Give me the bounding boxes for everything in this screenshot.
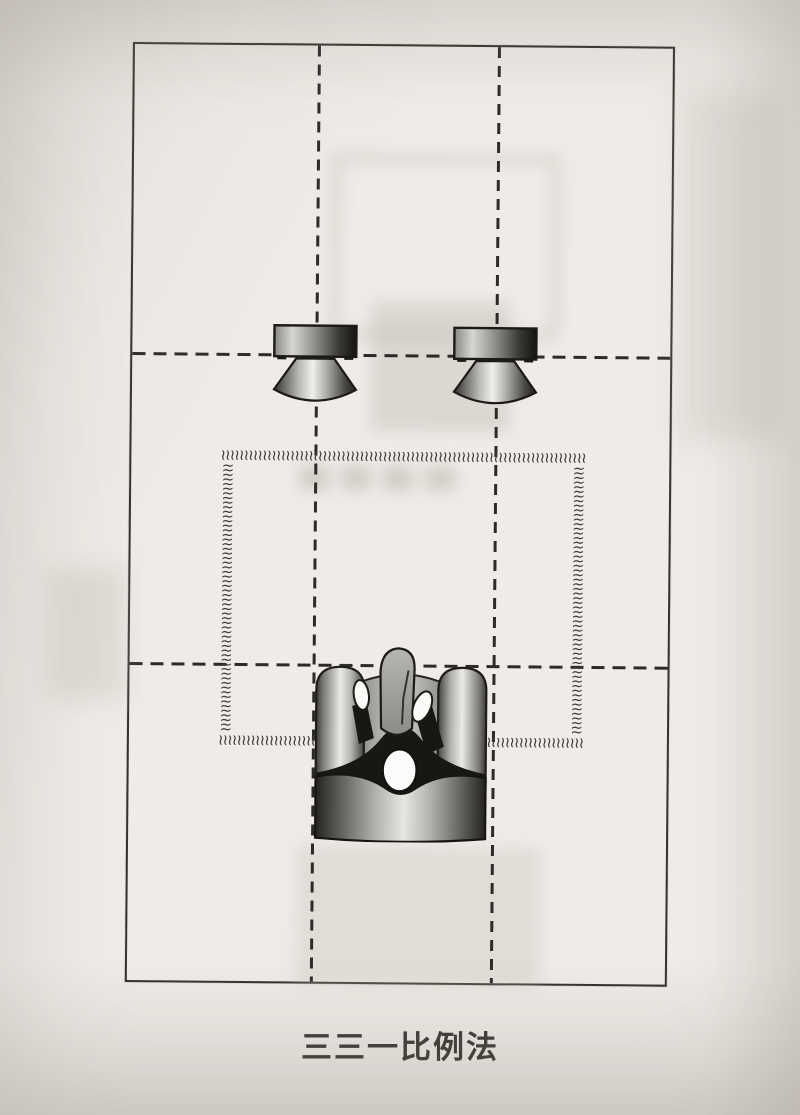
zigzag-border-left: ≀≀≀≀≀≀≀≀≀≀≀≀≀≀≀≀≀≀≀≀≀≀≀≀≀≀≀≀≀≀≀≀≀≀≀≀≀≀≀≀… (218, 463, 235, 733)
room-outline: ≀≀≀≀≀≀≀≀≀≀≀≀≀≀≀≀≀≀≀≀≀≀≀≀≀≀≀≀≀≀≀≀≀≀≀≀≀≀≀≀… (125, 42, 675, 987)
left-speaker-icon (257, 323, 374, 410)
listener-armchair-icon (313, 646, 489, 844)
page-bleedthrough (425, 467, 455, 491)
page-bleedthrough (383, 466, 413, 490)
page-bleedthrough (48, 568, 126, 700)
page-bleedthrough (295, 845, 541, 987)
book-page-photo: ≀≀≀≀≀≀≀≀≀≀≀≀≀≀≀≀≀≀≀≀≀≀≀≀≀≀≀≀≀≀≀≀≀≀≀≀≀≀≀≀… (0, 0, 800, 1115)
speaker-front-line (132, 352, 670, 360)
zigzag-border-right: ≀≀≀≀≀≀≀≀≀≀≀≀≀≀≀≀≀≀≀≀≀≀≀≀≀≀≀≀≀≀≀≀≀≀≀≀≀≀≀≀… (569, 466, 586, 736)
zigzag-border-top: ≀≀≀≀≀≀≀≀≀≀≀≀≀≀≀≀≀≀≀≀≀≀≀≀≀≀≀≀≀≀≀≀≀≀≀≀≀≀≀≀… (220, 448, 586, 466)
right-speaker-icon (437, 326, 554, 413)
caption-text: 三三一比例法 (0, 1022, 800, 1067)
vertical-third-line-right (490, 47, 501, 983)
page-bleedthrough (330, 154, 560, 340)
page-bleedthrough (680, 90, 780, 440)
page-bleedthrough (341, 466, 371, 490)
